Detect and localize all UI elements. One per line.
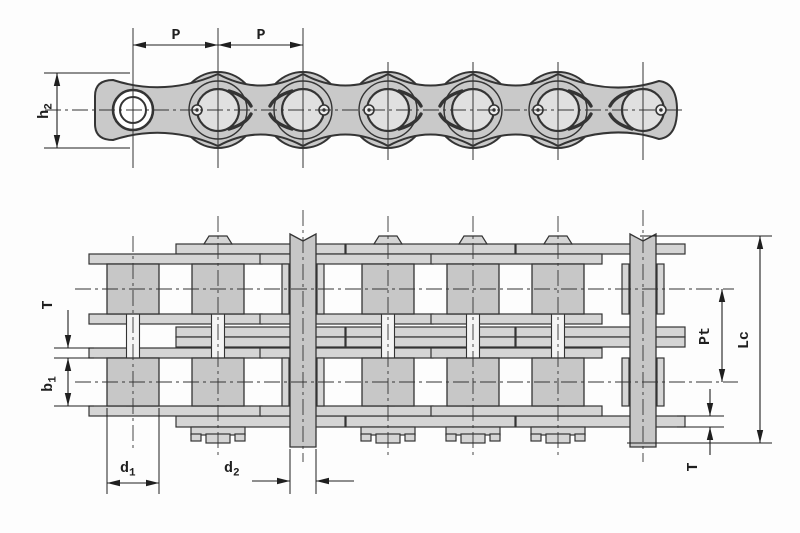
inner-plate-bar (89, 254, 262, 264)
inner-plate-bar (431, 406, 602, 416)
outer-plate-bar (176, 327, 345, 337)
chain-technical-drawing-page: P P h2 (0, 0, 800, 533)
dim-transverse-pitch: Pt (697, 289, 722, 382)
inner-plate-bar (260, 314, 433, 324)
outer-plate-bar (516, 327, 685, 337)
plate-thickness-label-right: T (685, 462, 702, 471)
pitch-label-2: P (256, 27, 265, 44)
outer-plate-bar (176, 244, 345, 254)
outer-plate-bar (516, 337, 685, 347)
transverse-pitch-label: Pt (697, 327, 714, 345)
inner-plate-bar (431, 314, 602, 324)
outer-plate-bar (516, 416, 685, 427)
overall-pin-length-label: Lc (736, 331, 753, 349)
plate-thickness-label-left: T (40, 300, 57, 309)
pin-diameter-label: d2 (224, 460, 240, 480)
inner-width-label: b1 (40, 376, 60, 392)
inner-plate-bar (89, 348, 262, 358)
inner-plate-bar (89, 406, 262, 416)
inner-plate-bar (89, 314, 262, 324)
dim-plate-thickness-left: T (40, 300, 94, 358)
plate-height-label: h2 (36, 103, 56, 119)
dim-pin-diameter: d2 (224, 449, 354, 494)
pitch-label-1: P (171, 27, 180, 44)
inner-plate-bar (260, 254, 433, 264)
inner-plate-bar (431, 348, 602, 358)
plan-view: T b1 d1 d2 Pt (40, 210, 772, 494)
outer-plate-bar (346, 244, 515, 254)
roller-diameter-label: d1 (120, 460, 136, 480)
outer-plate-bar (176, 416, 345, 427)
outer-plate-bar (346, 337, 515, 347)
outer-plate-bar (516, 244, 685, 254)
chain-technical-drawing: P P h2 (0, 0, 800, 533)
inner-plate-bar (260, 406, 433, 416)
outer-plate-bar (176, 337, 345, 347)
outer-plate-bar (346, 416, 515, 427)
side-view: P P h2 (36, 27, 686, 168)
dim-plate-thickness-right: T (677, 389, 724, 472)
inner-plate-bar (260, 348, 433, 358)
inner-plate-bar (431, 254, 602, 264)
outer-plate-bar (346, 327, 515, 337)
